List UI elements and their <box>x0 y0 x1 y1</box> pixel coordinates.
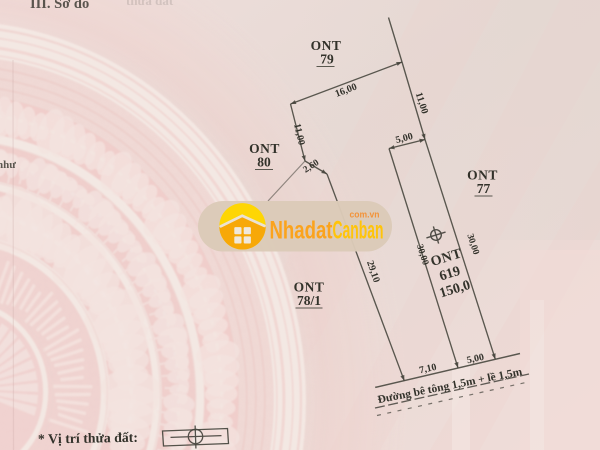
svg-text:77: 77 <box>477 181 491 196</box>
svg-text:* Vị trí thửa đất:: * Vị trí thửa đất: <box>38 430 138 447</box>
svg-text:80: 80 <box>257 155 271 170</box>
svg-text:79: 79 <box>320 52 334 67</box>
svg-text:III. Sơ đồ: III. Sơ đồ <box>30 0 89 12</box>
svg-text:như: như <box>0 159 16 171</box>
svg-text:Nhadat: Nhadat <box>270 217 333 245</box>
svg-text:com.vn: com.vn <box>350 210 380 220</box>
svg-text:78/1: 78/1 <box>297 293 321 308</box>
svg-text:thửa đất: thửa đất <box>126 0 174 8</box>
svg-text:Canban: Canban <box>333 217 384 245</box>
